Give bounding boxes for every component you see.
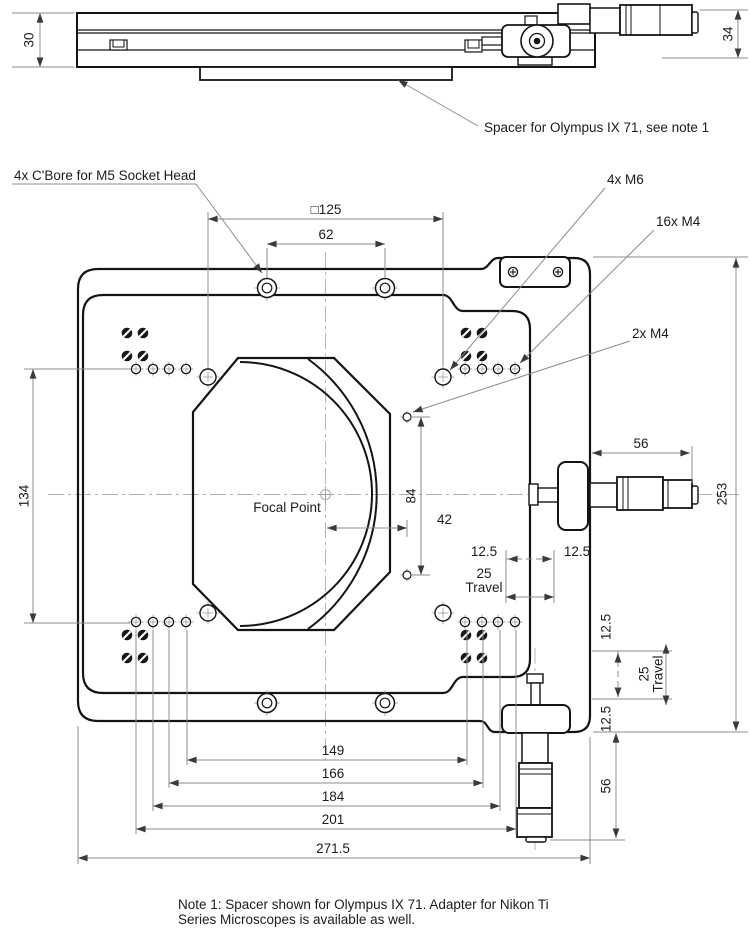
dim-42 xyxy=(327,520,407,537)
m6-leader xyxy=(450,188,605,370)
aperture-octagon xyxy=(193,358,390,630)
m4-16-label: 16x M4 xyxy=(656,214,701,229)
bottom-micrometer xyxy=(502,674,570,842)
travel-h-25-text: 25 xyxy=(476,566,491,581)
bottom-spindle-tip xyxy=(527,674,543,683)
dim-201-text: 201 xyxy=(322,812,345,827)
dim-166-text: 166 xyxy=(322,766,345,781)
dimensions: 4x C'Bore for M5 Socket Head 4x M6 16x M… xyxy=(12,168,748,864)
side-view: 30 34 Spacer for Olympus IX 71, see note… xyxy=(12,4,748,135)
cbore-leader xyxy=(196,184,262,273)
dim-12-5-left-text: 12.5 xyxy=(471,544,497,559)
right-micrometer-thimble xyxy=(663,480,692,508)
dim-253-text: 253 xyxy=(715,483,730,506)
lens-arc-inner xyxy=(240,362,372,626)
dim-134-text: 134 xyxy=(17,484,32,507)
dim-149-text: 149 xyxy=(322,743,345,758)
bottom-micrometer-barrel xyxy=(519,763,552,808)
spacer-note-text: Spacer for Olympus IX 71, see note 1 xyxy=(484,120,709,135)
dim-12-5-top-text: 12.5 xyxy=(599,614,614,640)
dim-125-text: □125 xyxy=(311,202,342,217)
outer-plate-outline xyxy=(78,258,590,732)
note-block: Note 1: Spacer shown for Olympus IX 71. … xyxy=(178,897,549,927)
m6-label: 4x M6 xyxy=(607,172,644,187)
travel-v-word-text: Travel xyxy=(651,655,666,692)
bottom-micrometer-thimble xyxy=(517,808,552,837)
main-view: Focal Point xyxy=(78,257,698,842)
cbore-label: 4x C'Bore for M5 Socket Head xyxy=(14,168,196,183)
dim-56-bottom xyxy=(550,733,625,840)
lens-arc-outer xyxy=(308,359,377,629)
right-micrometer-bracket xyxy=(558,462,588,530)
dim-12-5-right-text: 12.5 xyxy=(564,544,590,559)
stage-drawing-svg: 30 34 Spacer for Olympus IX 71, see note… xyxy=(0,0,750,937)
dim-30-text: 30 xyxy=(22,32,37,47)
bottom-micrometer-bracket xyxy=(502,705,570,733)
note-line1: Note 1: Spacer shown for Olympus IX 71. … xyxy=(178,897,549,912)
top-right-tab xyxy=(500,257,570,287)
dim-184-text: 184 xyxy=(322,789,345,804)
dim-62 xyxy=(267,244,385,277)
note-line2: Series Microscopes is available as well. xyxy=(178,912,415,927)
m4-16-leader xyxy=(520,230,654,363)
dim-34-text: 34 xyxy=(721,26,736,42)
dim-56-bottom-text: 56 xyxy=(599,778,614,793)
dim-42-text: 42 xyxy=(437,512,452,527)
right-micrometer xyxy=(529,462,698,530)
right-micrometer-barrel xyxy=(617,477,663,510)
dim-56-right-text: 56 xyxy=(633,436,648,451)
dim-12-5-bottom-text: 12.5 xyxy=(599,706,614,732)
m4-2-label: 2x M4 xyxy=(632,326,669,341)
right-spindle xyxy=(538,488,558,502)
aperture xyxy=(193,358,390,630)
focal-point-label: Focal Point xyxy=(253,500,321,515)
travel-h-word-text: Travel xyxy=(465,580,502,595)
dim-271-5-text: 271.5 xyxy=(316,841,350,856)
side-spindle xyxy=(482,37,502,45)
spacer-leader-line xyxy=(398,80,478,126)
travel-v-25-text: 25 xyxy=(637,666,652,681)
technical-drawing-page: 30 34 Spacer for Olympus IX 71, see note… xyxy=(0,0,750,937)
dim-84-text: 84 xyxy=(404,488,419,504)
dim-62-text: 62 xyxy=(318,227,333,242)
right-spindle-tip xyxy=(529,484,538,505)
bottom-spindle xyxy=(531,683,540,706)
spacer-plate xyxy=(200,67,452,80)
